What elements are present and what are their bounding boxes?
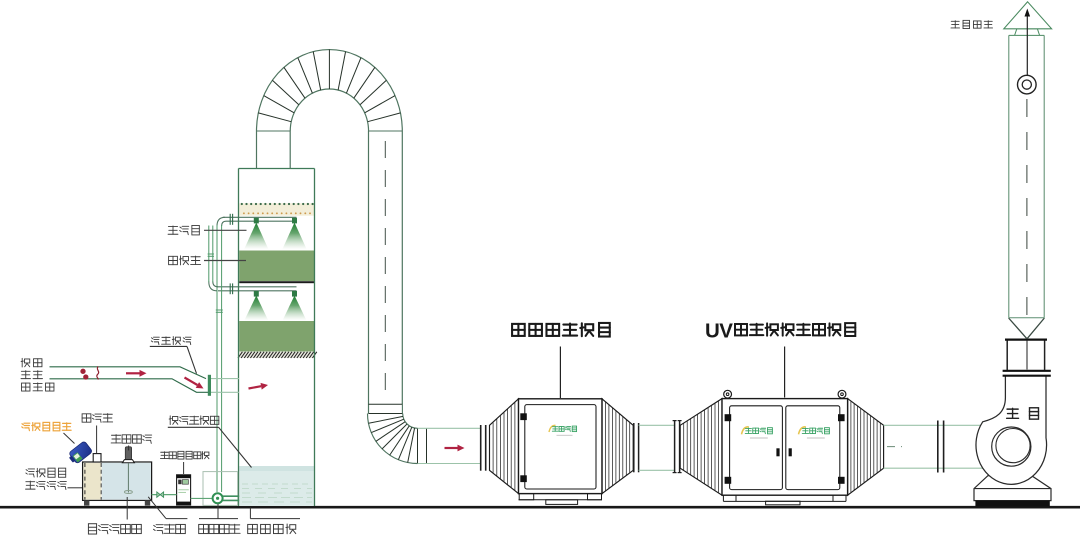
svg-text:UV: UV [705,320,733,343]
